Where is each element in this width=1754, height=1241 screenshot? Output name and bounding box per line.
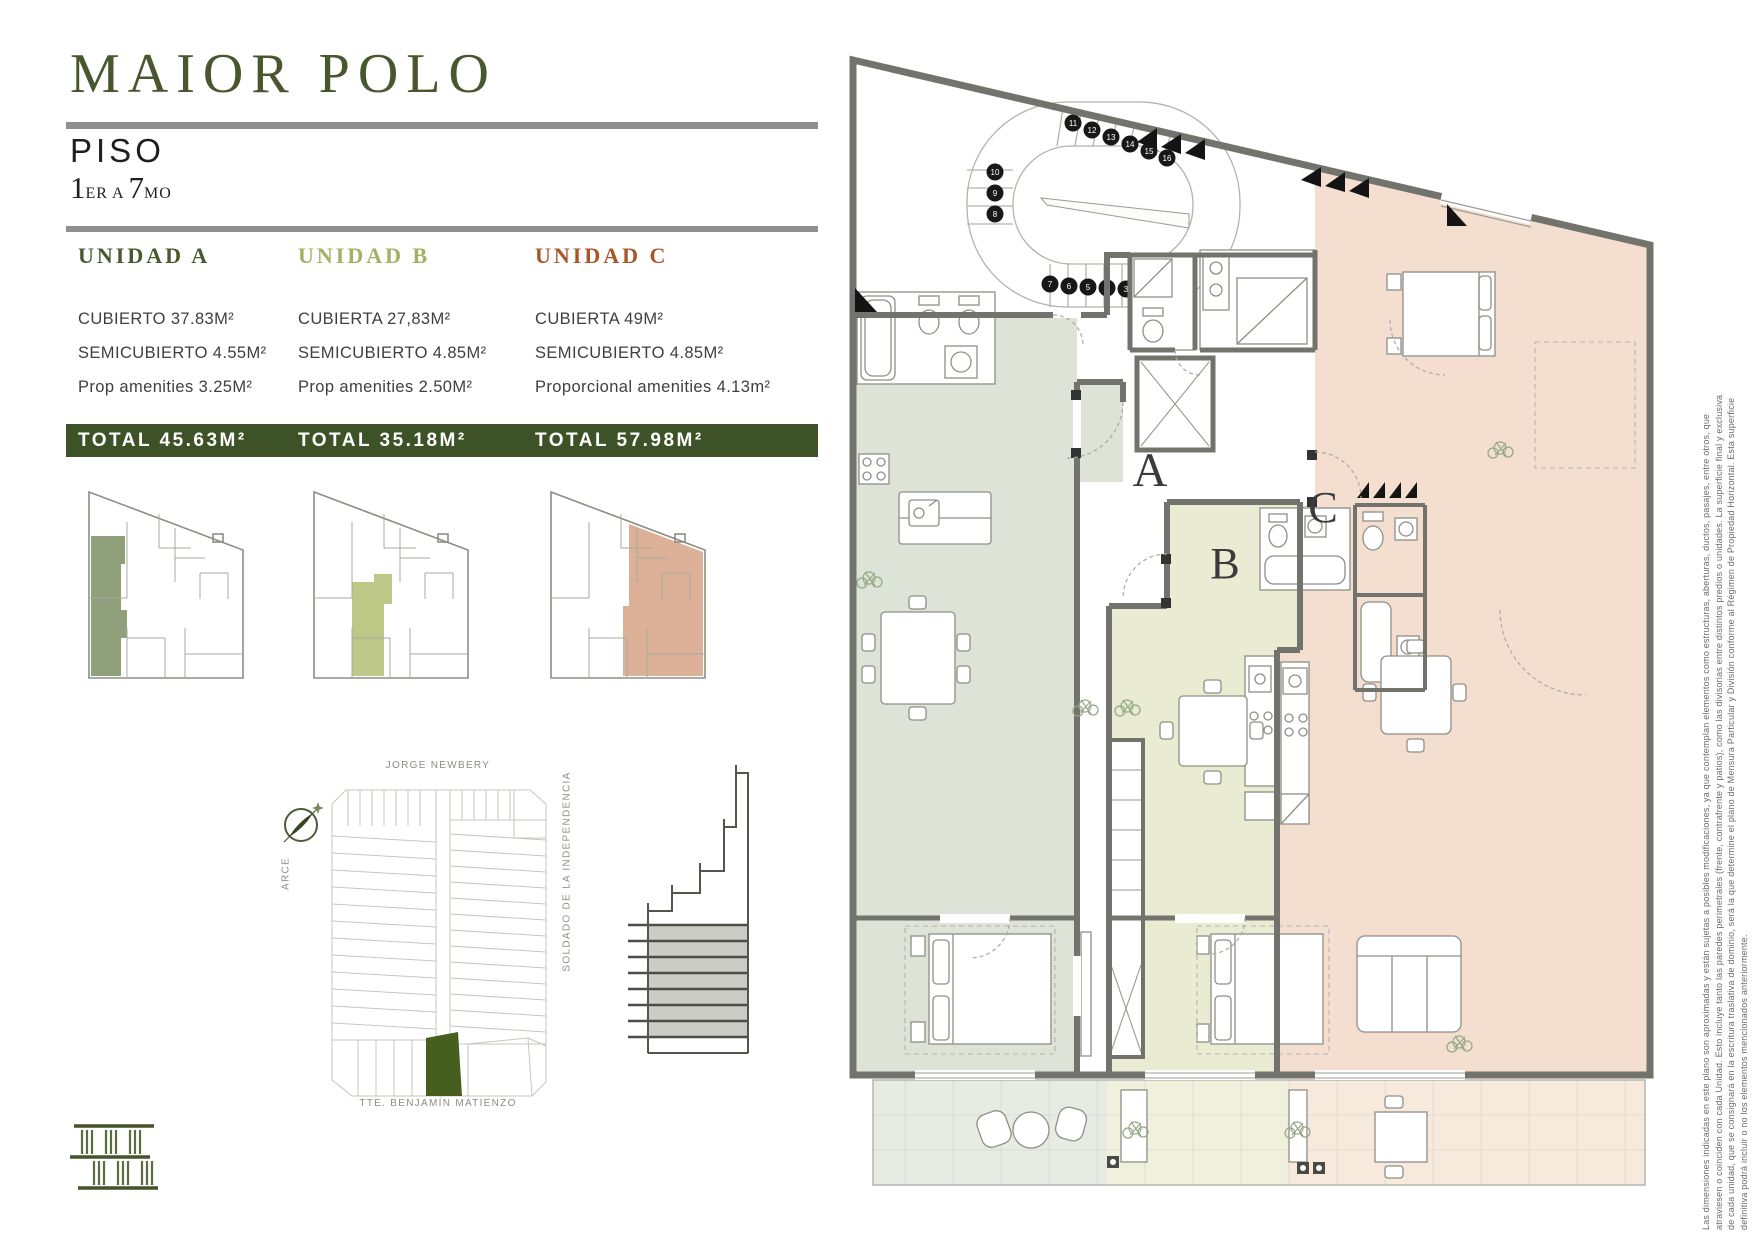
location-map — [318, 778, 558, 1108]
unit-c-semicubierto: SEMICUBIERTO 4.85M² — [535, 344, 825, 363]
plan-label-unit-c: C — [1308, 483, 1337, 532]
unit-c-amenities: Proporcional amenities 4.13m² — [535, 378, 825, 397]
unit-a-highlight — [91, 536, 127, 676]
stair-landing — [1041, 198, 1189, 228]
svg-text:8: 8 — [993, 210, 998, 219]
unit-a-amenities: Prop amenities 3.25M² — [78, 378, 318, 397]
unit-c-details: CUBIERTA 49M² SEMICUBIERTO 4.85M² Propor… — [535, 310, 825, 412]
svg-text:14: 14 — [1126, 140, 1135, 149]
floor-plan: 11 12 13 14 15 16 10 9 8 7 6 5 4 3 2 1 — [845, 50, 1655, 1190]
unit-a-details: CUBIERTO 37.83M² SEMICUBIERTO 4.55M² Pro… — [78, 310, 318, 412]
plan-label-unit-b: B — [1210, 539, 1239, 588]
floor-suffix-2: MO — [144, 185, 172, 202]
totals-bar: TOTAL 45.63M² TOTAL 35.18M² TOTAL 57.98M… — [66, 424, 818, 457]
map-project-lot — [426, 1032, 462, 1096]
unit-b-semicubierto: SEMICUBIERTO 4.85M² — [298, 344, 538, 363]
divider-top — [66, 122, 818, 129]
unit-c-highlight — [623, 524, 703, 676]
svg-text:12: 12 — [1088, 126, 1097, 135]
project-title: MAIOR POLO — [70, 42, 497, 106]
legal-disclaimer: Las dimensiones indicadas en este plano … — [1700, 25, 1752, 1230]
legal-line: de cada unidad, que se consignará en la … — [1725, 25, 1738, 1230]
floor-connector: A — [112, 185, 125, 202]
unit-b-thumbnail — [300, 478, 480, 686]
unit-c-total: TOTAL 57.98M² — [535, 430, 704, 452]
svg-text:10: 10 — [991, 168, 1000, 177]
floor-num-1: 1 — [70, 170, 86, 205]
unit-a-semicubierto: SEMICUBIERTO 4.55M² — [78, 344, 318, 363]
svg-text:6: 6 — [1067, 282, 1072, 291]
building-elevation — [612, 715, 762, 1080]
street-soldado-independencia: SOLDADO DE LA INDEPENDENCIA — [562, 757, 573, 987]
floor-range: 1ER A 7MO — [70, 170, 172, 206]
street-jorge-newbery: JORGE NEWBERY — [318, 760, 558, 771]
svg-text:9: 9 — [993, 189, 998, 198]
floor-label: PISO — [70, 132, 165, 170]
unit-b-title: UNIDAD B — [298, 243, 430, 269]
plan-label-unit-a: A — [1133, 444, 1168, 497]
unit-a-title: UNIDAD A — [78, 243, 210, 269]
unit-a-cubierto: CUBIERTO 37.83M² — [78, 310, 318, 329]
unit-c-thumbnail — [537, 478, 717, 686]
floor-suffix-1: ER — [86, 185, 108, 202]
brochure-page: MAIOR POLO PISO 1ER A 7MO UNIDAD A UNIDA… — [0, 0, 1754, 1241]
unit-b-total: TOTAL 35.18M² — [298, 430, 467, 452]
legal-line: definitiva podrá incluir o no los elemen… — [1738, 25, 1751, 1230]
unit-b-cubierta: CUBIERTA 27,83M² — [298, 310, 538, 329]
unit-b-details: CUBIERTA 27,83M² SEMICUBIERTO 4.85M² Pro… — [298, 310, 538, 412]
developer-logo-icon — [66, 1112, 166, 1204]
legal-line: atraviesen o coinciden con cada Unidad. … — [1713, 25, 1726, 1230]
unit-b-amenities: Prop amenities 2.50M² — [298, 378, 538, 397]
street-arce: ARCE — [281, 824, 292, 924]
floor-num-2: 7 — [129, 170, 145, 205]
legal-line: Las dimensiones indicadas en este plano … — [1700, 25, 1713, 1230]
svg-text:11: 11 — [1069, 119, 1078, 128]
unit-a-total: TOTAL 45.63M² — [78, 430, 247, 452]
divider-under-floor — [66, 226, 818, 232]
svg-text:15: 15 — [1145, 147, 1154, 156]
svg-text:5: 5 — [1086, 283, 1091, 292]
svg-text:13: 13 — [1107, 133, 1116, 142]
unit-c-title: UNIDAD C — [535, 243, 668, 269]
unit-c-cubierta: CUBIERTA 49M² — [535, 310, 825, 329]
unit-b-highlight — [352, 574, 392, 676]
svg-text:7: 7 — [1048, 280, 1053, 289]
unit-a-thumbnail — [75, 478, 255, 686]
svg-text:16: 16 — [1163, 154, 1172, 163]
